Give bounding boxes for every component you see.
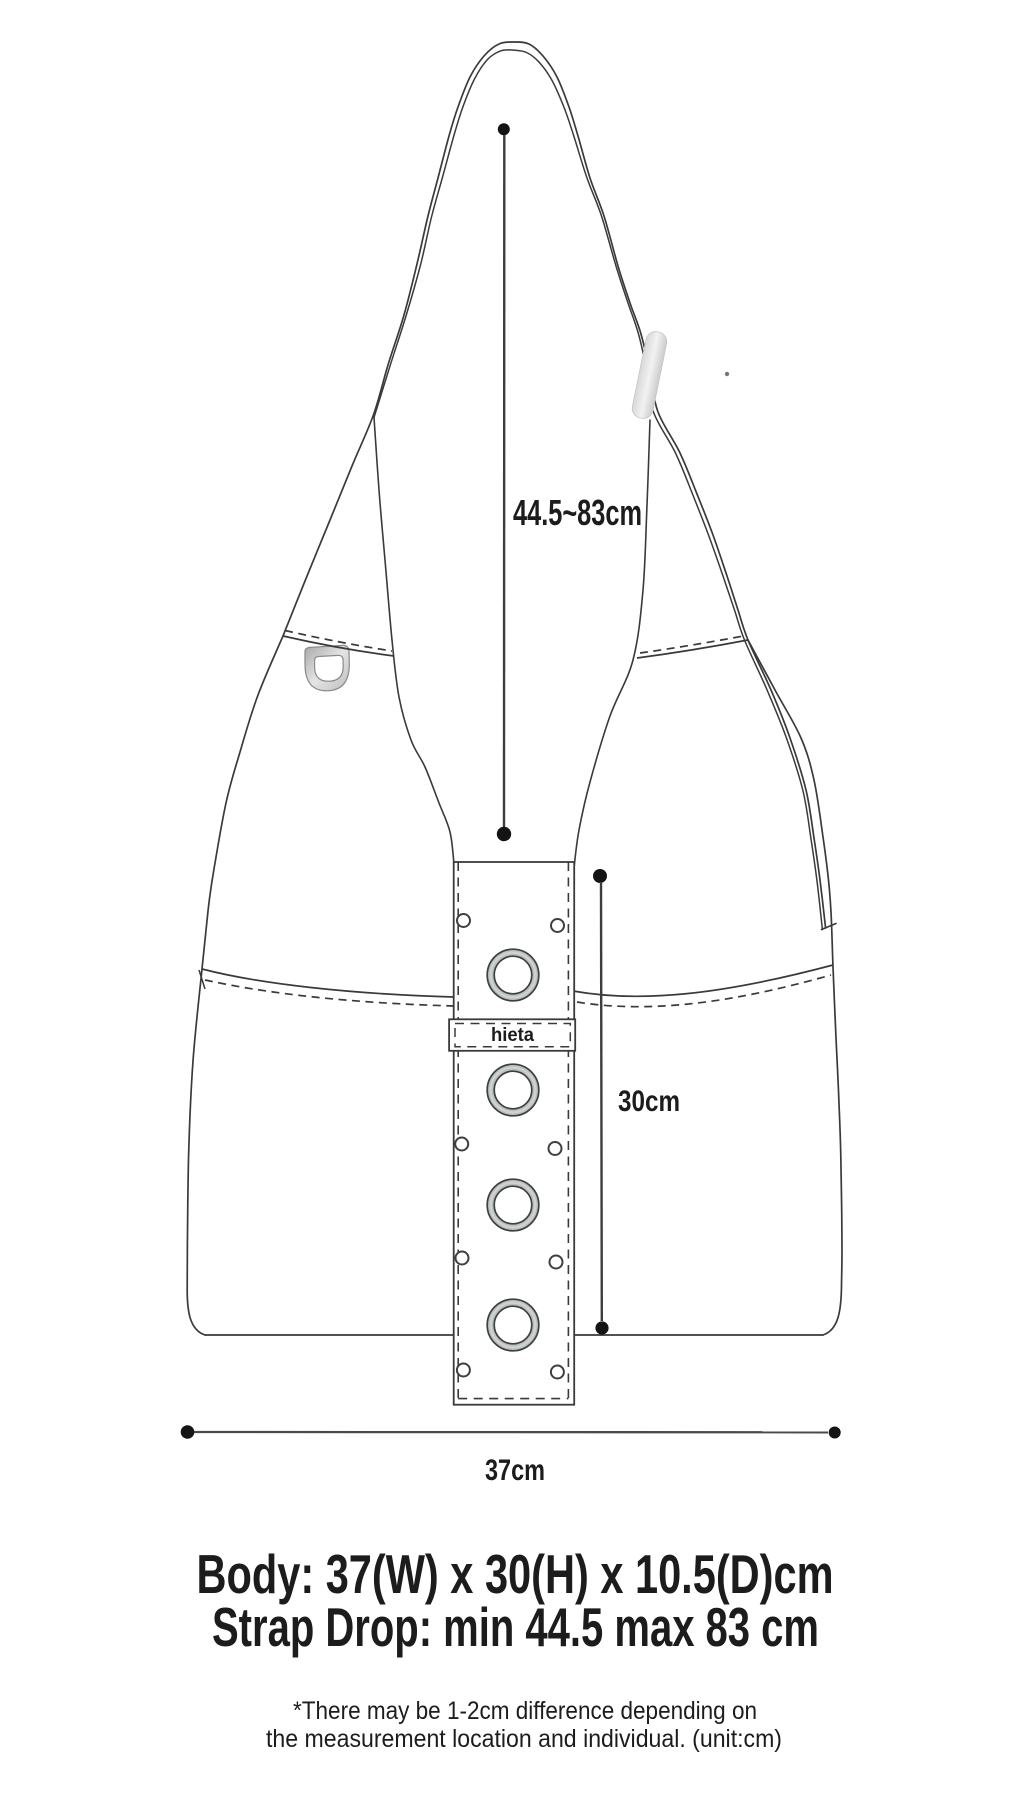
svg-text:*There may be 1-2cm difference: *There may be 1-2cm difference depending…: [293, 1697, 757, 1725]
svg-text:30cm: 30cm: [618, 1085, 680, 1118]
svg-text:Strap Drop: min 44.5 max 83 cm: Strap Drop: min 44.5 max 83 cm: [212, 1596, 819, 1658]
svg-text:44.5~83cm: 44.5~83cm: [513, 492, 642, 533]
svg-text:the measurement location and i: the measurement location and individual.…: [266, 1725, 782, 1753]
svg-text:37cm: 37cm: [485, 1454, 545, 1487]
svg-text:hieta: hieta: [491, 1025, 534, 1046]
